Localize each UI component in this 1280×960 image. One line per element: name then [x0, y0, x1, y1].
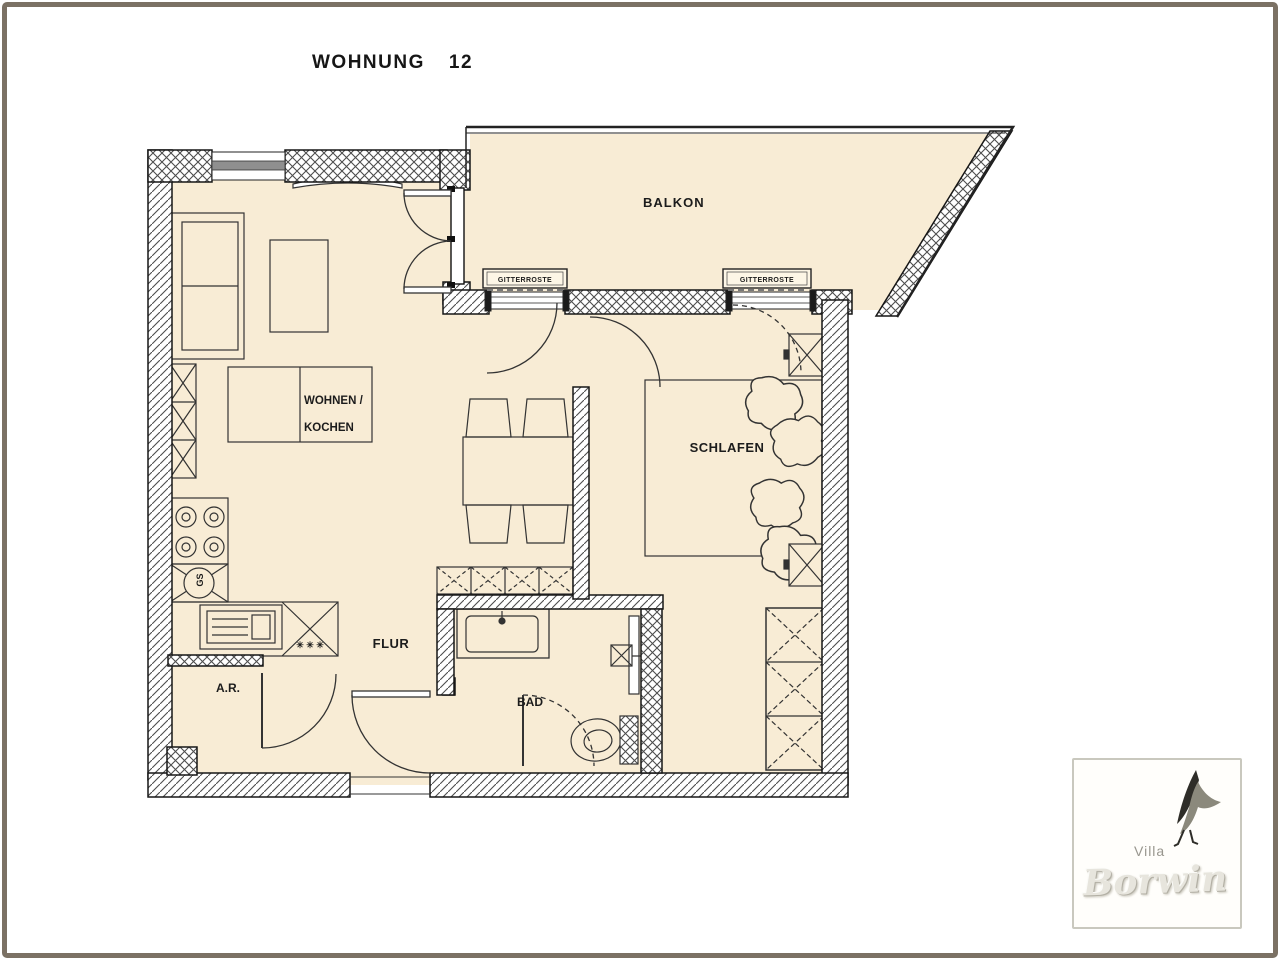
window-living — [212, 152, 285, 180]
wardrobe — [766, 608, 824, 770]
wall-bottom-left — [148, 773, 350, 797]
logo-prefix: Villa — [1134, 843, 1165, 859]
wall-left — [148, 150, 172, 780]
label-schlafen: SCHLAFEN — [690, 440, 765, 455]
grating-label: GITTERROSTE — [740, 277, 794, 284]
label-bad: BAD — [517, 695, 543, 709]
nightstand-top — [784, 334, 825, 376]
wall-bedroom-left — [573, 387, 589, 599]
grating-2: GITTERROSTE — [723, 269, 811, 290]
wall-top-b — [285, 150, 447, 182]
label-dishwasher: GS — [195, 573, 205, 586]
wall-bottom-right — [430, 773, 848, 797]
logo-name: Borwin — [1073, 857, 1236, 905]
wall-top-a — [148, 150, 212, 182]
washbasin — [457, 609, 549, 658]
nightstand-bottom — [784, 544, 825, 586]
label-flur: FLUR — [373, 636, 410, 651]
wall-right — [822, 300, 848, 785]
label-wohnen: WOHNEN / — [304, 395, 364, 407]
grating-label: GITTERROSTE — [498, 277, 552, 284]
grating-1: GITTERROSTE — [483, 269, 567, 290]
window-balcony-2 — [726, 290, 816, 311]
villa-borwin-logo: Villa Borwin — [1072, 758, 1242, 929]
hob-symbol: ✳ ✳ ✳ — [296, 640, 324, 650]
wall-bath-left — [437, 609, 454, 695]
label-kochen: KOCHEN — [304, 422, 354, 434]
seagull-icon — [1160, 768, 1222, 854]
wall-bath-right — [641, 609, 662, 773]
label-balkon: BALKON — [643, 195, 705, 210]
wall-bath-top — [437, 595, 663, 609]
label-ar: A.R. — [216, 681, 240, 695]
